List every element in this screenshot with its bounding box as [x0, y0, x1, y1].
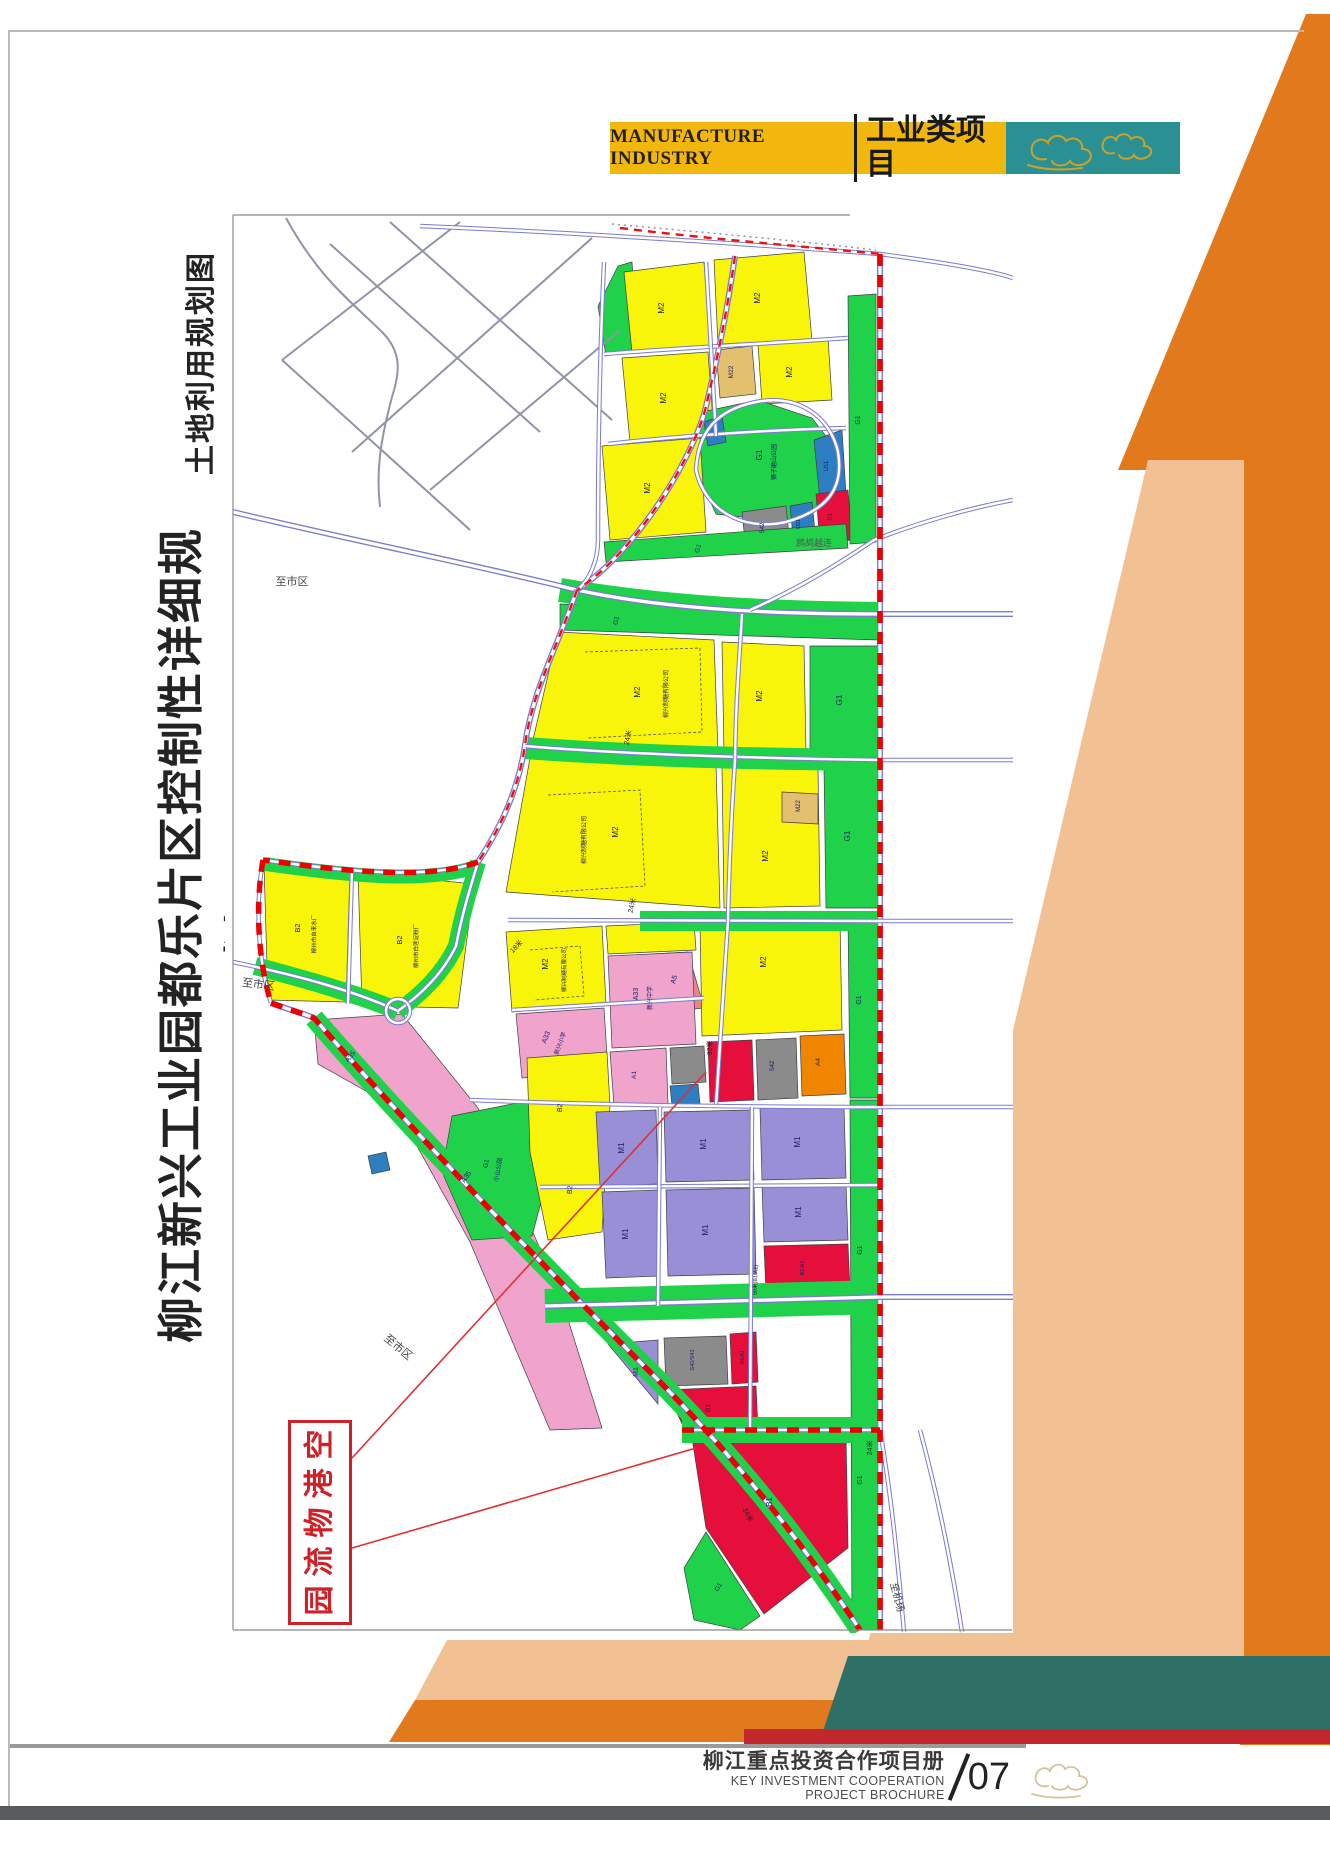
parcel-m-m2-r2: [722, 766, 820, 908]
footer: 柳江重点投资合作项目册 KEY INVESTMENT COOPERATION P…: [640, 1750, 1110, 1806]
map-label: G1: [855, 415, 862, 424]
parcel-u-m2-4: [758, 338, 832, 404]
map-label: G1: [755, 449, 764, 460]
parcel-p-m1-c: [760, 1106, 846, 1180]
callout-char: 园: [301, 1572, 340, 1630]
parcel-p-s4241: [664, 1336, 728, 1386]
parcel-r3-a1: [610, 1048, 668, 1106]
map-label: G1: [857, 1245, 864, 1254]
map-label: B1: [828, 513, 834, 521]
map-label: M2: [753, 292, 762, 304]
parcel-r3-g-east: [848, 920, 878, 1098]
map-label: U11: [824, 460, 830, 471]
page-subtitle-vertical: 土地利用规划图: [184, 227, 220, 499]
page-number: 07: [953, 1752, 1010, 1802]
header-title-english: MANUFACTURE INDUSTRY: [610, 126, 845, 170]
map-label: M22: [728, 365, 735, 378]
parcel-p-m1-b: [664, 1110, 754, 1182]
map-label: S42: [770, 1060, 776, 1071]
map-label: M2: [611, 826, 620, 838]
map-label: 柳兴制糖有限公司: [560, 948, 568, 992]
parcel-m-g-e1: [810, 646, 878, 756]
map-label: M1: [793, 1136, 802, 1148]
map-label: B1: [705, 1404, 712, 1412]
decor-red-bar: [744, 1729, 1330, 1744]
map-label: 至市区: [276, 574, 309, 588]
parcel-g-east-long: [850, 1100, 878, 1630]
map-label: 新兴中学: [646, 986, 654, 1010]
map-label: 柳州市白莲淀粉厂: [412, 924, 420, 969]
map-label: M2: [643, 482, 652, 494]
map-label: G1: [843, 830, 852, 841]
parcel-p-m1-e: [666, 1188, 756, 1276]
map-label: M2: [659, 392, 668, 404]
map-label: U21: [796, 519, 802, 529]
footer-title-english-1: KEY INVESTMENT COOPERATION: [703, 1774, 945, 1788]
airport-logistics-callout: 空港物流园: [288, 1420, 352, 1625]
map-label: B2: [567, 1185, 575, 1194]
parcel-u-g-east: [848, 294, 876, 544]
page-number-slash: [947, 1753, 969, 1801]
map-label: B2: [293, 923, 302, 932]
map-label: 柳州市自来水厂: [310, 914, 318, 953]
map-label: A1: [631, 1071, 638, 1079]
map-label: 狮子磨山公园: [770, 444, 778, 480]
header-banner: MANUFACTURE INDUSTRY 工业类项目: [610, 122, 1006, 174]
map-label: M1: [701, 1224, 710, 1236]
page-border-left: [8, 30, 10, 1818]
map-label: M2: [633, 686, 642, 698]
map-label: B1/A1: [800, 1261, 806, 1276]
parcel-blue-tiny: [368, 1152, 390, 1174]
footer-cloud-icon: [1018, 1750, 1110, 1806]
map-label: S42: [760, 522, 766, 533]
map-label: A33: [633, 988, 640, 1001]
parcel-r3-s42: [756, 1038, 798, 1100]
map-label: M2: [785, 366, 794, 378]
cloud-ornament-icon: [1018, 125, 1168, 171]
map-label: M1: [794, 1206, 803, 1218]
parcel-p-m1-d: [602, 1190, 660, 1278]
parcel-r3-m2-left: [506, 926, 606, 1012]
map-label: M2: [759, 956, 768, 968]
page-bottom-bar: [0, 1806, 1330, 1820]
map-label: M1: [621, 1228, 630, 1240]
map-label: S42/S41: [690, 1349, 696, 1370]
page-title-vertical: 柳江新兴工业园都乐片区控制性详细规划: [148, 520, 214, 1350]
parcel-p-m1-a: [596, 1110, 658, 1186]
map-label: B2: [557, 1103, 565, 1112]
map-label: M2: [755, 690, 764, 702]
map-label: G1: [856, 995, 863, 1004]
map-label: G1: [835, 694, 844, 705]
road: [508, 920, 1013, 921]
map-label: B1/A1: [740, 1350, 746, 1364]
page-number-value: 07: [968, 1752, 1010, 1802]
map-label: A4: [815, 1058, 822, 1066]
map-label: G1: [857, 1475, 864, 1484]
map-label: B1: [765, 1497, 774, 1507]
parcel-u-m2-1: [624, 262, 710, 352]
map-label: M2: [657, 302, 666, 314]
page-border-top: [8, 30, 1304, 32]
map-label: M1: [699, 1138, 708, 1150]
map-label: M2: [761, 850, 770, 862]
map-label: M1: [633, 1367, 640, 1377]
header-teal-block: [1006, 122, 1180, 174]
header-title-chinese: 工业类项目: [854, 114, 1000, 182]
footer-rule: [8, 1744, 1026, 1748]
footer-title-english-2: PROJECT BROCHURE: [703, 1788, 945, 1802]
map-label: M2: [541, 958, 550, 970]
parcel-u-m22: [716, 346, 756, 398]
map-label: M22: [796, 800, 802, 812]
footer-text-block: 柳江重点投资合作项目册 KEY INVESTMENT COOPERATION P…: [703, 1750, 945, 1802]
map-label: 柳兴制糖有限公司: [662, 670, 670, 718]
parcel-r3-a4: [800, 1034, 846, 1096]
footer-title-chinese: 柳江重点投资合作项目册: [703, 1750, 945, 1774]
map-label: 柳兴制糖有限公司: [580, 816, 588, 864]
map-label: M1: [617, 1142, 626, 1154]
parcel-p-m1-f: [762, 1184, 848, 1242]
map-label: B2: [395, 935, 404, 944]
map-label: 鹧鸪越连: [796, 537, 832, 548]
